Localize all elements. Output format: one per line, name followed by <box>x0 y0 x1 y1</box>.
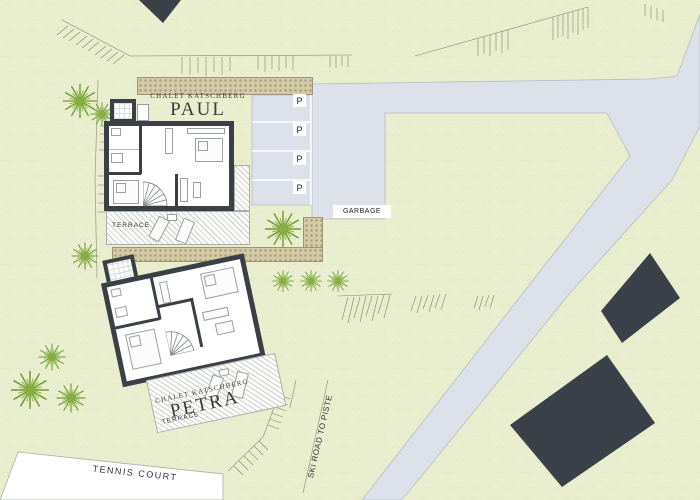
parking-space-marker: P <box>293 94 306 107</box>
table <box>167 214 177 221</box>
garbage-label: GARBAGE <box>333 205 391 218</box>
table <box>193 182 201 198</box>
site-plan-base <box>0 0 700 500</box>
site-plan: TERRACE CHALET KATSCHBERG PAUL <box>0 0 700 500</box>
table <box>218 368 229 377</box>
bed <box>200 267 239 300</box>
bed <box>113 180 139 204</box>
spiral-stairs-icon <box>143 176 173 206</box>
kitchen-counter <box>159 281 171 304</box>
cobble-path-vertical <box>303 217 323 251</box>
parking-space-marker: P <box>293 123 306 136</box>
bed <box>125 328 162 369</box>
paul-terrace-label: TERRACE <box>112 222 150 229</box>
sofa <box>202 307 229 321</box>
lounger <box>175 218 195 245</box>
kitchen-counter <box>165 128 173 154</box>
parking-space-marker: P <box>293 152 306 165</box>
paul-name-label: PAUL <box>142 100 254 119</box>
paul-building <box>104 121 234 211</box>
sofa <box>180 178 188 202</box>
paul-title: CHALET KATSCHBERG PAUL <box>142 92 254 119</box>
table <box>215 320 235 335</box>
bed <box>195 138 223 162</box>
paul-terrace-side <box>234 165 250 211</box>
paul-bathroom-annex <box>110 99 136 123</box>
wardrobe <box>187 128 225 134</box>
parking-space-marker: P <box>293 181 306 194</box>
